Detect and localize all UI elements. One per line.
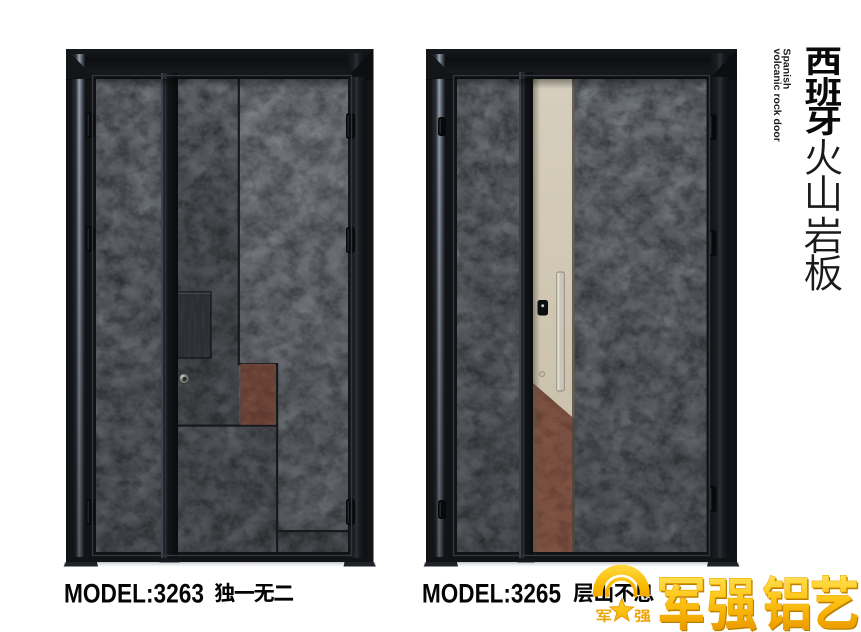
svg-text:MODEL:3265: MODEL:3265 (422, 578, 561, 608)
svg-text:MODEL:3263: MODEL:3263 (64, 578, 204, 608)
